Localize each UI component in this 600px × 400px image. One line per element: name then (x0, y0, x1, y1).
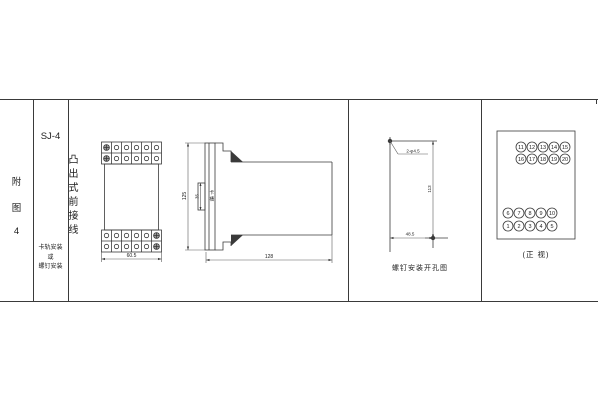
front-width-dimension: 60.5 (102, 252, 162, 262)
terminal-9: 9 (539, 211, 542, 217)
terminal-6: 6 (506, 211, 509, 217)
terminal-7: 7 (517, 211, 520, 217)
terminal-10: 10 (549, 211, 555, 217)
terminal-4: 4 (539, 224, 542, 230)
side-body-profile (215, 143, 332, 250)
table-top-border (0, 99, 598, 100)
mounting-line-3: 螺钉安装 (38, 264, 62, 271)
mounting-line-1: 卡轨安装 (38, 245, 62, 252)
front-width-value: 60.5 (127, 253, 137, 259)
terminal-caption: (正 视) (494, 249, 578, 260)
terminal-20: 20 (562, 157, 568, 163)
drill-hole-bottom (425, 236, 448, 248)
terminal-bottom-group: 6 7 8 9 10 1 2 3 4 5 (503, 208, 557, 231)
drill-height-dimension: 113 (427, 141, 434, 238)
terminal-16: 16 (518, 157, 524, 163)
mounting-method-label: 卡轨安装 或 螺钉安装 (33, 245, 68, 271)
terminal-1: 1 (506, 224, 509, 230)
terminal-5: 5 (550, 224, 553, 230)
terminal-top-group: 11 12 13 14 15 16 17 18 19 20 (516, 142, 570, 164)
terminal-8: 8 (528, 211, 531, 217)
figure-char-3: 4 (14, 226, 19, 237)
side-depth-dimension: 128 (206, 235, 332, 263)
slot-width-value: 35 (195, 194, 200, 199)
slot-label-char-1: 卡 (209, 189, 214, 196)
terminal-17: 17 (529, 157, 535, 163)
figure-number-label: 附 图 4 (0, 174, 33, 237)
model-label: SJ-4 (33, 131, 68, 142)
terminal-15: 15 (562, 145, 568, 151)
terminal-11: 11 (518, 145, 524, 151)
terminal-13: 13 (540, 145, 546, 151)
side-view-drawing: 125 35 卡 槽 (182, 136, 342, 268)
terminal-diagram: 11 12 13 14 15 16 17 18 19 20 6 7 8 9 10 (494, 128, 578, 246)
front-top-terminal-block (102, 142, 162, 164)
front-bottom-terminal-block (102, 230, 162, 252)
divider-4 (481, 99, 482, 301)
terminal-18: 18 (540, 157, 546, 163)
drill-width-value: 48.5 (406, 232, 415, 237)
divider-3 (348, 99, 349, 301)
terminal-3: 3 (528, 224, 531, 230)
terminal-14: 14 (551, 145, 557, 151)
side-height-dimension: 125 (182, 143, 205, 250)
terminal-2: 2 (517, 224, 520, 230)
drill-caption: 螺钉安装开孔图 (380, 263, 460, 273)
type-label: 凸出式前接线 (44, 151, 79, 241)
side-depth-value: 128 (265, 254, 274, 260)
front-body (105, 164, 159, 230)
table-right-tick (596, 99, 597, 104)
front-view-drawing: 60.5 (99, 138, 167, 270)
figure-char-1: 附 (12, 174, 22, 188)
side-height-value: 125 (182, 192, 188, 201)
terminal-12: 12 (529, 145, 535, 151)
terminal-19: 19 (551, 157, 557, 163)
table-bottom-border (0, 301, 598, 302)
drill-diagram: 2-φ4.5 113 48.5 (380, 134, 460, 262)
din-rail-slot: 35 卡 槽 (195, 183, 215, 210)
figure-char-2: 图 (12, 200, 22, 214)
mounting-line-2: 或 (47, 255, 53, 262)
holes-callout: 2-φ4.5 (390, 141, 428, 154)
drill-height-value: 113 (427, 185, 432, 193)
slot-label-char-2: 槽 (209, 196, 214, 203)
drawing-sheet: 附 图 4 SJ-4 凸出式前接线 卡轨安装 或 螺钉安装 (0, 0, 600, 400)
holes-label: 2-φ4.5 (406, 149, 420, 154)
